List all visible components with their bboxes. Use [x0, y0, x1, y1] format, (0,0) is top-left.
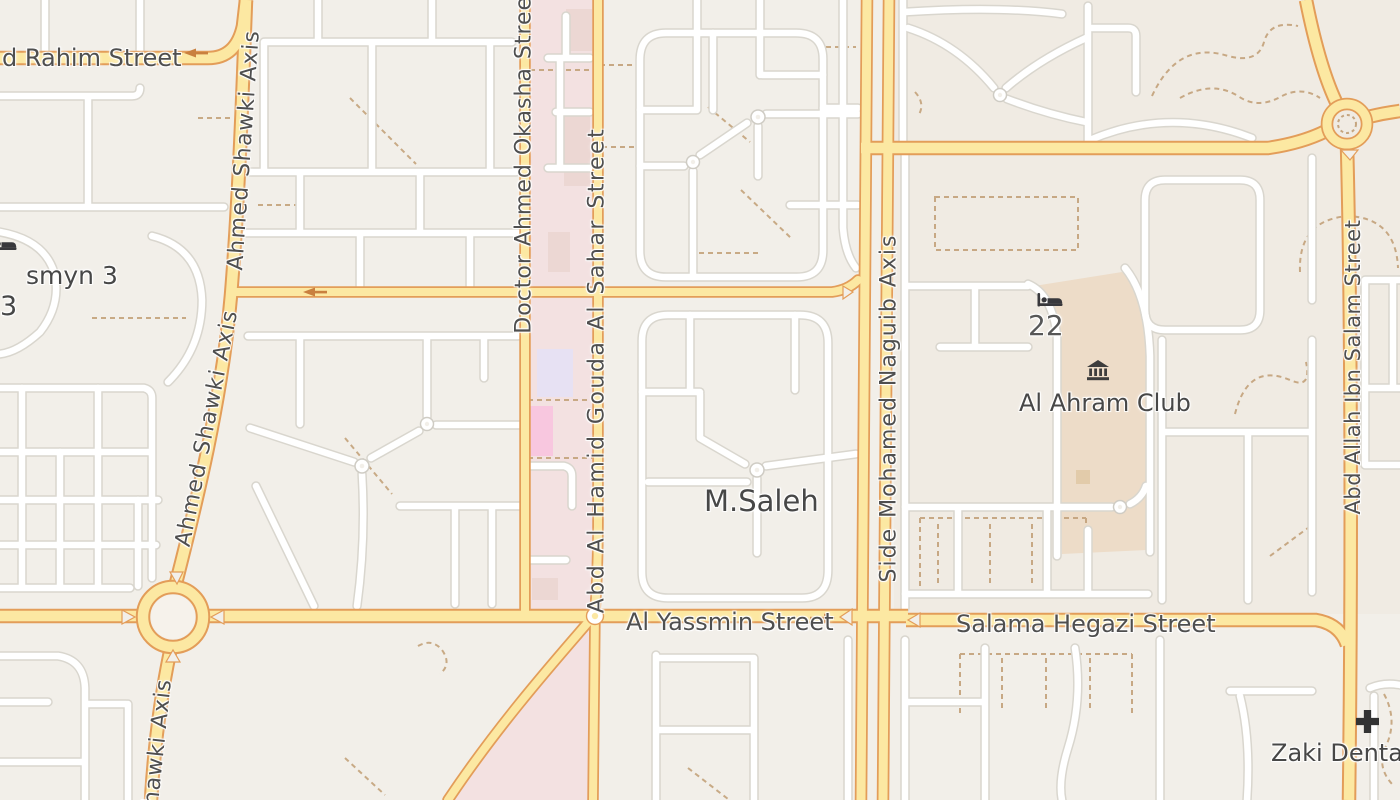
poi-label-hotel-22: 22: [1028, 309, 1064, 342]
place-label-zaki-dental: Zaki Dental: [1271, 739, 1400, 767]
place-label-msaleh: M.Saleh: [704, 484, 819, 518]
place-label-yasmyn3: smyn 3: [26, 261, 118, 290]
roundabout-northeast: [1327, 104, 1367, 144]
place-label-ahram-club: Al Ahram Club: [1019, 389, 1191, 417]
building-magenta: [530, 406, 553, 456]
place-label-yasmyn3-cut: 3: [0, 291, 17, 322]
building-lavender: [537, 349, 573, 397]
street-label-yassmin: Al Yassmin Street: [626, 608, 834, 636]
bed-icon: [1037, 292, 1063, 310]
bed-icon: [0, 236, 17, 254]
street-label-okasha: Doctor Ahmed Okasha Street: [512, 0, 537, 334]
map-canvas[interactable]: d Rahim Street Ahmed Shawki Axis Ahmed S…: [0, 0, 1400, 800]
cross-icon: [1356, 710, 1379, 733]
street-label-rahim: d Rahim Street: [2, 44, 182, 72]
street-label-naguib: Side Mohamed Naguib Axis: [877, 234, 902, 583]
museum-icon: [1086, 360, 1110, 382]
club-small-building: [1076, 470, 1090, 484]
roundabout-southwest: [143, 587, 203, 647]
street-label-hegazi: Salama Hegazi Street: [956, 610, 1216, 638]
street-label-gouda: Abd Al Hamid Gouda Al Sahar Street: [585, 127, 610, 613]
street-label-salam: Abd Allah Ibn Salam Street: [1341, 220, 1365, 515]
